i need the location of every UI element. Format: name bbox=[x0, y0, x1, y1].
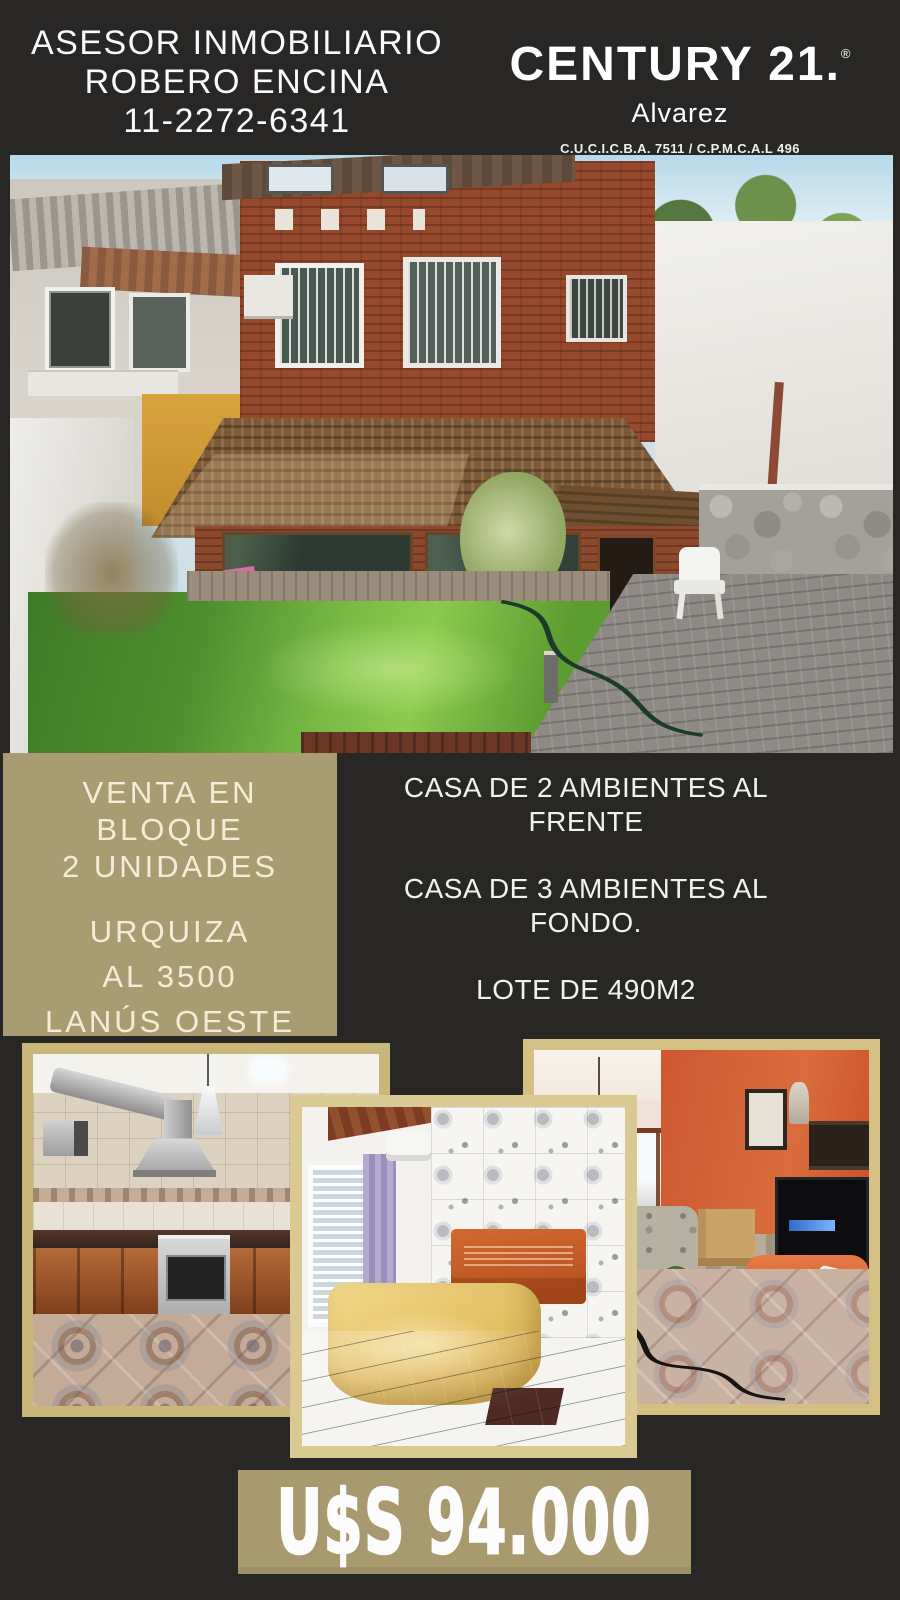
cardboard-boxes bbox=[698, 1209, 755, 1266]
sale-line: 2 UNIDADES bbox=[3, 848, 337, 885]
wall-shelf-unit bbox=[809, 1121, 869, 1171]
brand-license: C.U.C.I.C.B.A. 7511 / C.P.M.C.A.L 496 bbox=[470, 141, 890, 156]
feature-item: CASA DE 3 AMBIENTES AL FONDO. bbox=[368, 872, 804, 940]
skylight bbox=[266, 164, 334, 194]
skylight bbox=[381, 164, 449, 194]
feature-item: CASA DE 2 AMBIENTES AL FRENTE bbox=[368, 771, 804, 839]
property-description: CASA DE 2 AMBIENTES AL FRENTE CASA DE 3 … bbox=[368, 771, 804, 1007]
sale-line: BLOQUE bbox=[3, 811, 337, 848]
price-banner: U$S 94.000 bbox=[238, 1470, 691, 1574]
tv-screen-glint bbox=[789, 1220, 836, 1231]
neighbor-balcony bbox=[28, 370, 178, 396]
agent-title: ASESOR INMOBILIARIO bbox=[8, 24, 466, 63]
barred-window-small bbox=[566, 275, 627, 343]
microwave bbox=[43, 1121, 88, 1156]
real-estate-flyer: ASESOR INMOBILIARIO ROBERO ENCINA 11-227… bbox=[0, 0, 900, 1600]
ac-unit bbox=[244, 275, 293, 320]
neighbor-window bbox=[45, 287, 115, 373]
address-line: AL 3500 bbox=[3, 954, 337, 999]
address-line: URQUIZA bbox=[3, 909, 337, 954]
picture-frame bbox=[745, 1089, 787, 1150]
wall-ornament bbox=[789, 1082, 809, 1124]
century21-logo: CENTURY 21.® bbox=[470, 28, 890, 91]
sale-line: VENTA EN bbox=[3, 774, 337, 811]
brand-name: CENTURY 21. bbox=[509, 38, 840, 91]
bedroom-glossy-floor bbox=[302, 1331, 625, 1446]
barred-window bbox=[403, 257, 501, 369]
brick-planter bbox=[301, 732, 531, 753]
bedroom-ac-unit bbox=[386, 1131, 431, 1162]
bedroom-photo bbox=[290, 1095, 637, 1458]
price-value: U$S 94.000 bbox=[277, 1471, 652, 1574]
extractor-duct-elbow bbox=[164, 1100, 192, 1142]
address: URQUIZA AL 3500 LANÚS OESTE bbox=[3, 909, 337, 1044]
agent-name: ROBERO ENCINA bbox=[8, 63, 466, 102]
headboard-slats bbox=[464, 1243, 574, 1267]
lawn-sun-patch bbox=[257, 621, 522, 717]
agent-phone: 11-2272-6341 bbox=[8, 102, 466, 141]
pendant-lamp-cord bbox=[207, 1054, 209, 1089]
ceiling-lamp bbox=[251, 1058, 286, 1083]
dry-bush bbox=[45, 502, 177, 634]
brand-office: Alvarez bbox=[470, 98, 890, 129]
neighbor-window bbox=[129, 293, 190, 373]
feature-item: LOTE DE 490M2 bbox=[368, 973, 804, 1007]
oven-door bbox=[166, 1255, 225, 1301]
main-backyard-photo bbox=[10, 155, 893, 753]
vent-windows bbox=[275, 209, 425, 230]
garden-hose bbox=[496, 586, 761, 741]
sale-info-panel: VENTA EN BLOQUE 2 UNIDADES URQUIZA AL 35… bbox=[3, 753, 337, 1036]
registered-mark: ® bbox=[841, 46, 851, 61]
range-hood-base bbox=[133, 1170, 216, 1177]
address-line: LANÚS OESTE bbox=[3, 999, 337, 1044]
agent-info-block: ASESOR INMOBILIARIO ROBERO ENCINA 11-227… bbox=[8, 24, 466, 141]
brand-block: CENTURY 21.® Alvarez C.U.C.I.C.B.A. 7511… bbox=[470, 28, 890, 156]
sale-type: VENTA EN BLOQUE 2 UNIDADES bbox=[3, 753, 337, 885]
